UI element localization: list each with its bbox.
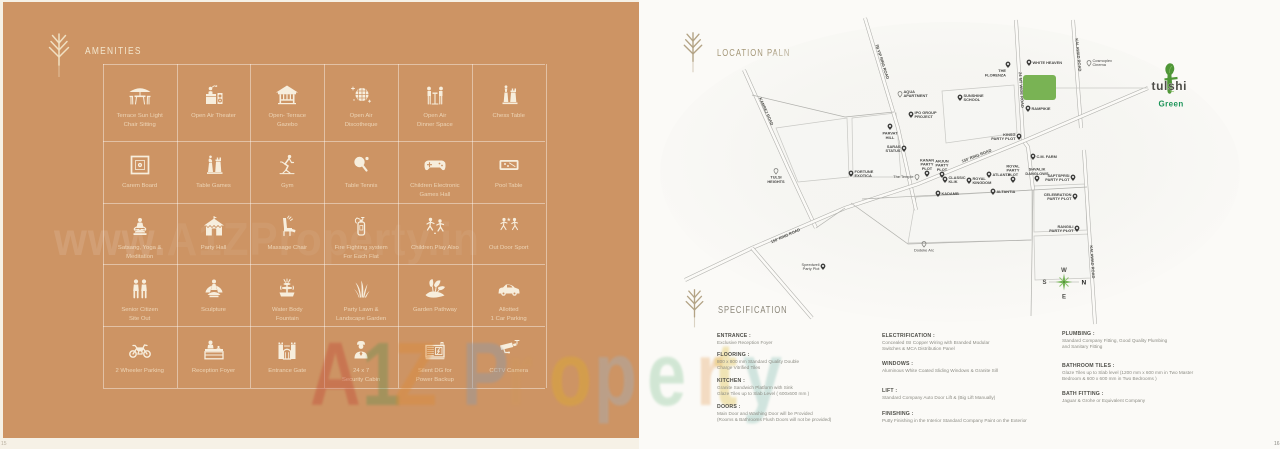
svg-text:ARJUNPARTYPLOT: ARJUNPARTYPLOT xyxy=(935,158,949,172)
svg-text:KADAMB: KADAMB xyxy=(942,191,959,196)
svg-text:tulshi: tulshi xyxy=(1152,79,1188,93)
svg-text:SARASSTATUS: SARASSTATUS xyxy=(886,144,901,153)
svg-text:KANANPARTYPLOT: KANANPARTYPLOT xyxy=(920,157,934,171)
svg-text:FORTUNEEXOTICA: FORTUNEEXOTICA xyxy=(855,169,874,178)
svg-text:ALTANTIA: ALTANTIA xyxy=(997,189,1016,194)
svg-text:SAPTSPRSIPARTY PLOT: SAPTSPRSIPARTY PLOT xyxy=(1045,173,1070,182)
svg-text:CELEBRATIONPARTY PLOT: CELEBRATIONPARTY PLOT xyxy=(1044,192,1072,201)
svg-text:Green: Green xyxy=(1159,100,1184,109)
svg-text:Dodeke Arc: Dodeke Arc xyxy=(914,248,934,253)
svg-text:S: S xyxy=(1042,280,1046,286)
svg-text:N: N xyxy=(1082,279,1087,286)
svg-text:WHITE HEAVEN: WHITE HEAVEN xyxy=(1033,60,1063,65)
svg-text:W: W xyxy=(1061,268,1067,274)
svg-text:C.M. FARM: C.M. FARM xyxy=(1037,154,1057,159)
svg-text:RAMPIKIE: RAMPIKIE xyxy=(1032,106,1051,111)
svg-text:ROYALPARTYPLOT: ROYALPARTYPLOT xyxy=(1006,163,1020,177)
svg-text:E: E xyxy=(1062,295,1066,301)
svg-text:SpeedwellParty Plot: SpeedwellParty Plot xyxy=(802,262,821,271)
svg-text:The Temple: The Temple xyxy=(893,174,913,179)
